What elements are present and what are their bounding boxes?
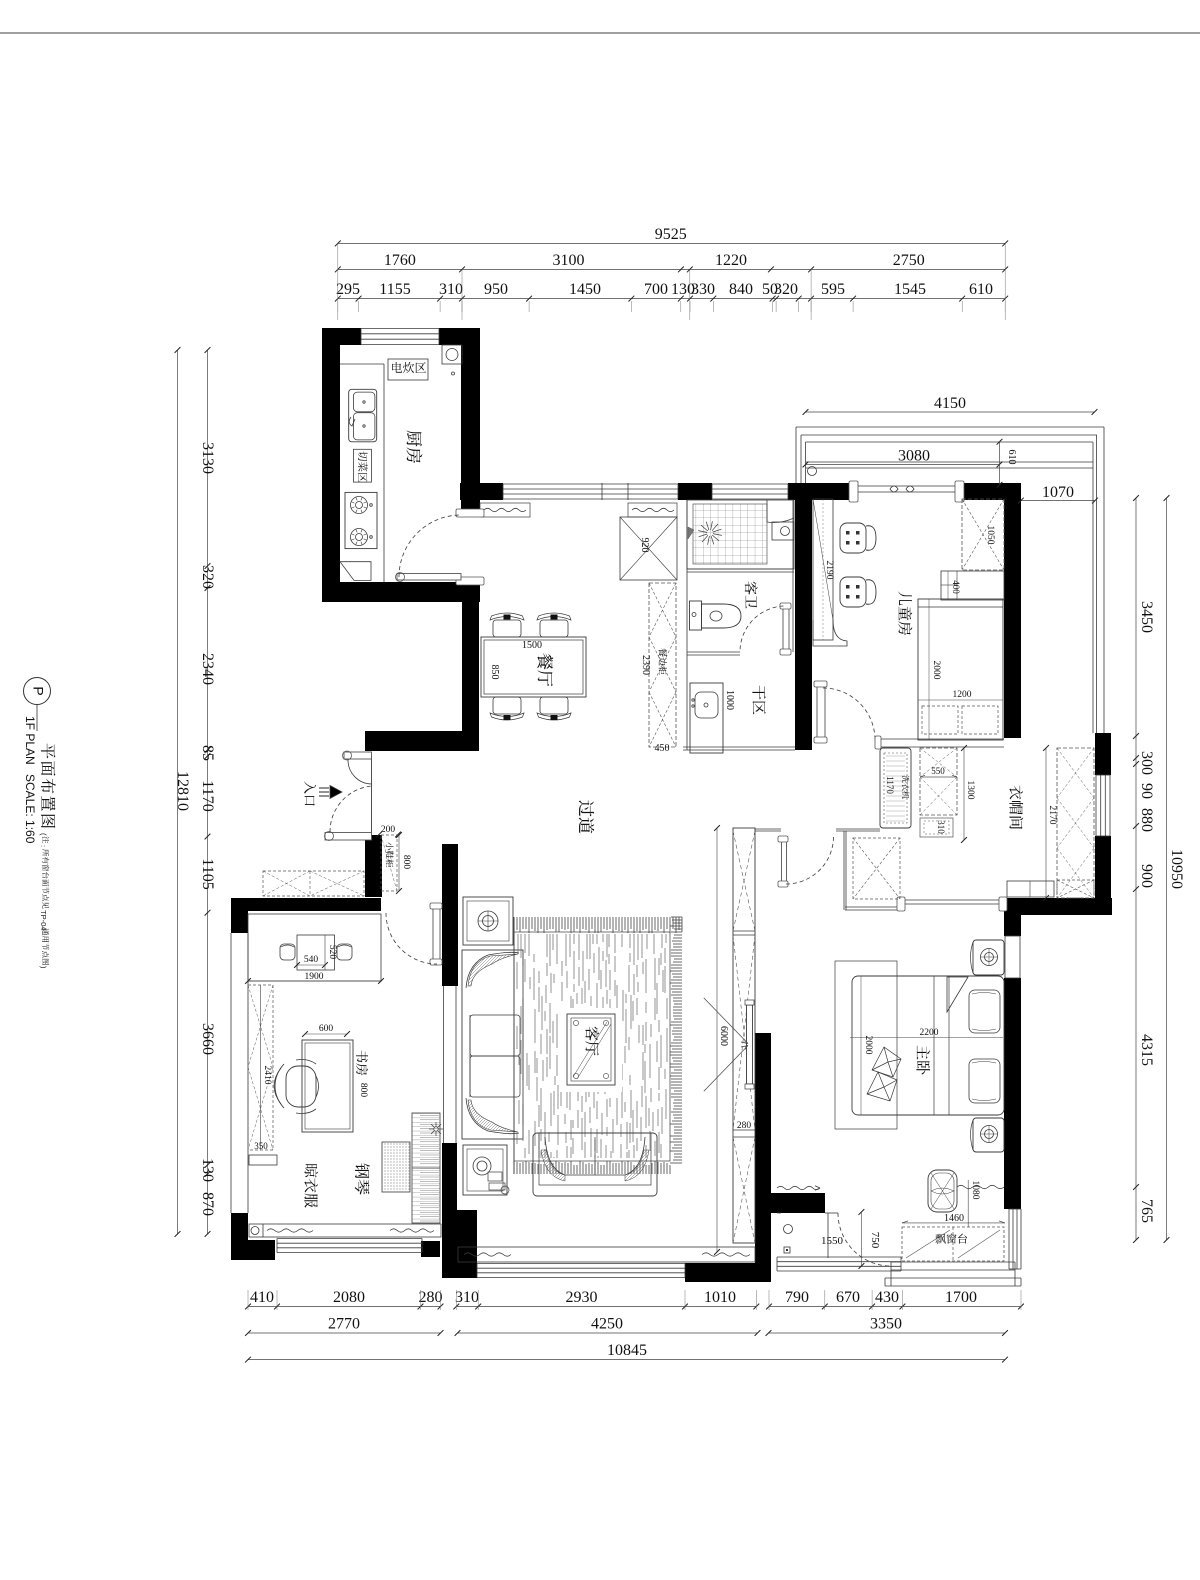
svg-text:3100: 3100 <box>553 252 585 269</box>
svg-text:9525: 9525 <box>655 226 687 243</box>
svg-text:280: 280 <box>419 1289 443 1306</box>
svg-text:1460: 1460 <box>944 1213 964 1224</box>
svg-text:1450: 1450 <box>569 281 601 298</box>
svg-text:765: 765 <box>1138 1199 1155 1223</box>
svg-text:3660: 3660 <box>199 1023 216 1055</box>
svg-text:600: 600 <box>319 1024 334 1034</box>
svg-text:700: 700 <box>644 281 668 298</box>
svg-text:P: P <box>31 686 47 695</box>
svg-text:800: 800 <box>401 855 411 870</box>
svg-text:10845: 10845 <box>607 1342 647 1359</box>
svg-text:1500: 1500 <box>522 640 542 651</box>
svg-text:2200: 2200 <box>920 1028 939 1038</box>
svg-text:200: 200 <box>381 825 396 835</box>
svg-text:2080: 2080 <box>333 1289 365 1306</box>
svg-text::: : <box>39 845 48 847</box>
svg-text:10950: 10950 <box>1168 849 1185 889</box>
svg-text:2770: 2770 <box>328 1316 360 1333</box>
svg-text:TP-04: TP-04 <box>39 910 48 930</box>
svg-text:1200: 1200 <box>953 690 972 700</box>
svg-text:610: 610 <box>969 281 993 298</box>
svg-text:350: 350 <box>254 1141 268 1151</box>
svg-text:870: 870 <box>199 1192 216 1216</box>
svg-text:1050: 1050 <box>985 526 995 545</box>
svg-text:320: 320 <box>774 281 798 298</box>
svg-text:520: 520 <box>327 945 337 960</box>
svg-text:12810: 12810 <box>174 771 191 811</box>
svg-text:2410: 2410 <box>262 1066 272 1085</box>
svg-text:SCALE: 1:60: SCALE: 1:60 <box>23 774 37 844</box>
svg-text:920: 920 <box>639 538 650 553</box>
svg-text:90: 90 <box>1138 783 1155 799</box>
svg-text:3130: 3130 <box>199 442 216 474</box>
svg-text:2930: 2930 <box>566 1289 598 1306</box>
svg-text:310: 310 <box>936 820 946 834</box>
svg-text:2390: 2390 <box>640 655 651 675</box>
svg-text:410: 410 <box>250 1289 274 1306</box>
svg-text:4250: 4250 <box>591 1316 623 1333</box>
svg-text:2750: 2750 <box>893 252 925 269</box>
svg-text:1300: 1300 <box>965 781 975 800</box>
svg-text:330: 330 <box>691 281 715 298</box>
svg-text:295: 295 <box>336 281 360 298</box>
svg-text:85: 85 <box>199 745 216 761</box>
svg-text:1545: 1545 <box>894 281 926 298</box>
svg-text:1220: 1220 <box>715 252 747 269</box>
svg-text:3350: 3350 <box>870 1316 902 1333</box>
svg-text:595: 595 <box>821 281 845 298</box>
svg-text:4315: 4315 <box>1138 1034 1155 1066</box>
svg-text:1070: 1070 <box>1042 484 1074 501</box>
svg-text:6000: 6000 <box>718 1026 729 1046</box>
svg-text:450: 450 <box>655 743 670 754</box>
svg-text:1080: 1080 <box>970 1181 980 1200</box>
svg-text:4150: 4150 <box>934 395 966 412</box>
svg-text:3450: 3450 <box>1138 601 1155 633</box>
svg-text:2190: 2190 <box>824 561 834 580</box>
svg-text:400: 400 <box>951 580 961 594</box>
svg-text:310: 310 <box>439 281 463 298</box>
svg-text:300: 300 <box>1138 751 1155 775</box>
svg-text:610: 610 <box>1006 450 1017 465</box>
svg-text:1760: 1760 <box>384 252 416 269</box>
svg-text:1F PLAN: 1F PLAN <box>23 716 37 765</box>
svg-text:1010: 1010 <box>704 1289 736 1306</box>
svg-text:550: 550 <box>931 766 945 776</box>
svg-text:1000: 1000 <box>724 690 735 710</box>
svg-text:2000: 2000 <box>863 1036 873 1055</box>
svg-text:3080: 3080 <box>898 448 930 465</box>
svg-text:2340: 2340 <box>199 653 216 685</box>
svg-text:800: 800 <box>358 1083 368 1098</box>
svg-text:670: 670 <box>836 1289 860 1306</box>
svg-text:320: 320 <box>199 565 216 589</box>
svg-text:2170: 2170 <box>1047 806 1057 825</box>
svg-text:310: 310 <box>455 1289 479 1306</box>
svg-text:1170: 1170 <box>885 776 895 794</box>
svg-text:1550: 1550 <box>821 1235 844 1247</box>
svg-text:900: 900 <box>1138 864 1155 888</box>
svg-text:540: 540 <box>304 955 319 965</box>
svg-text:1700: 1700 <box>945 1289 977 1306</box>
svg-text:1170: 1170 <box>199 780 216 811</box>
svg-text:1105: 1105 <box>199 858 216 889</box>
svg-text:280: 280 <box>737 1121 752 1131</box>
svg-text:840: 840 <box>729 281 753 298</box>
svg-text:850: 850 <box>489 665 500 680</box>
svg-text:950: 950 <box>484 281 508 298</box>
svg-text:2000: 2000 <box>931 661 941 680</box>
svg-text:1155: 1155 <box>379 281 410 298</box>
svg-text:1900: 1900 <box>305 972 324 982</box>
svg-text:130: 130 <box>199 1158 216 1182</box>
svg-text:880: 880 <box>1138 808 1155 832</box>
svg-text:750: 750 <box>869 1232 881 1249</box>
svg-text:790: 790 <box>785 1289 809 1306</box>
svg-text:430: 430 <box>875 1289 899 1306</box>
